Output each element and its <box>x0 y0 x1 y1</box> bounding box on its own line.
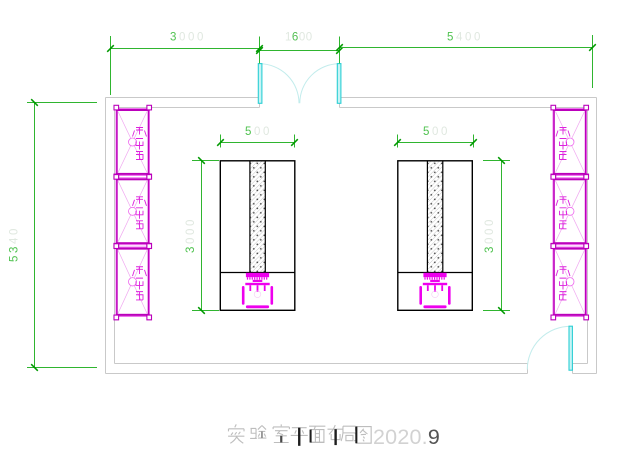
svg-text:3000: 3000 <box>484 217 496 253</box>
svg-text:500: 500 <box>245 126 272 138</box>
svg-text:3000: 3000 <box>170 32 206 44</box>
svg-text:500: 500 <box>423 126 450 138</box>
svg-text:1600: 1600 <box>285 32 313 44</box>
svg-text:2020.9: 2020.9 <box>373 425 440 449</box>
svg-text:3000: 3000 <box>185 217 197 253</box>
svg-text:5340: 5340 <box>9 226 21 262</box>
svg-text:5400: 5400 <box>447 32 483 44</box>
